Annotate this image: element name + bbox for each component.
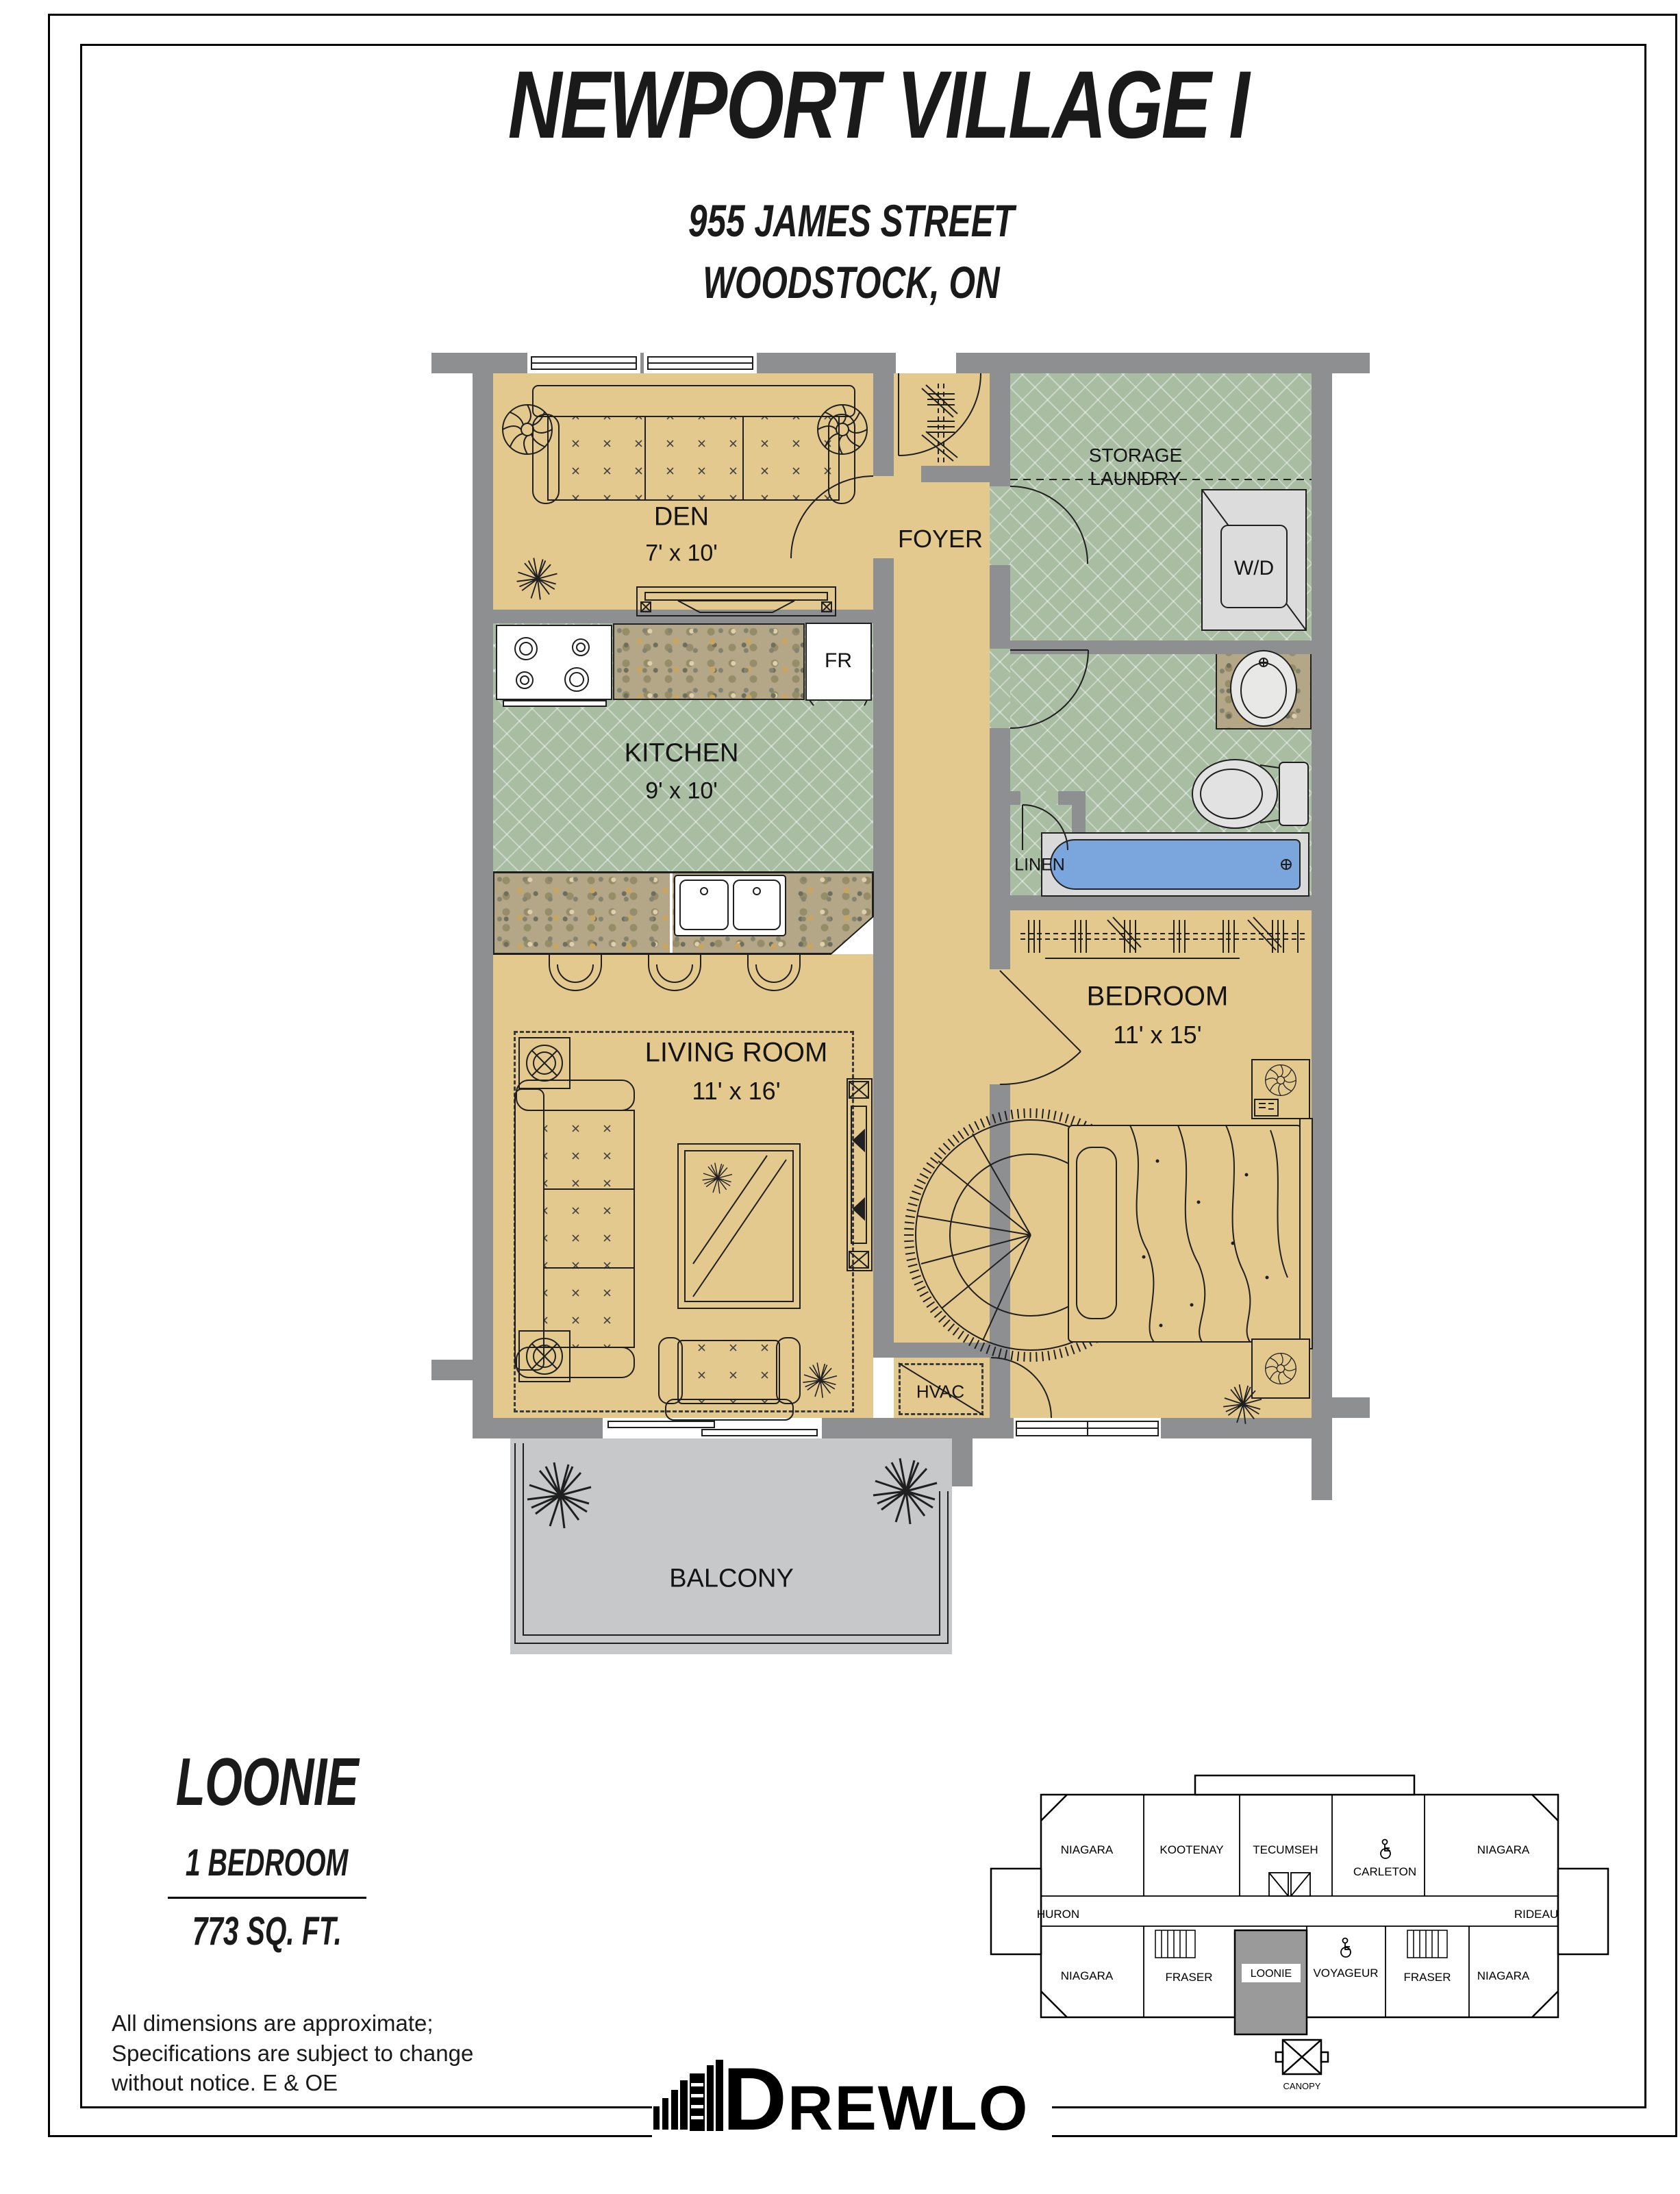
den-sofa (533, 386, 855, 503)
keyplan-unit-voyageur: VOYAGEUR (1313, 1967, 1378, 1980)
storage-label-line1: STORAGE (1089, 445, 1182, 466)
stove (497, 625, 612, 706)
linen-label: LINEN (1014, 856, 1065, 875)
keyplan-canopy-box (1276, 2040, 1328, 2074)
keyplan-rideau-wing (1558, 1869, 1608, 1954)
den-console (637, 587, 836, 616)
drewlo-logo-graphic: D REWLO (652, 2052, 1052, 2142)
armchair (659, 1338, 800, 1420)
logo-letters-rewlo: REWLO (788, 2073, 1029, 2142)
den-dims: 7' x 10' (645, 540, 718, 567)
storage-label-line2: LAUNDRY (1090, 468, 1181, 490)
keyplan-unit-niagara-tl: NIAGARA (1061, 1843, 1114, 1856)
keyplan-unit-rideau: RIDEAU (1514, 1908, 1558, 1921)
bar-stools (549, 954, 800, 990)
washer-dryer-label: W/D (1234, 557, 1274, 580)
disclaimer-line3: without notice. E & OE (112, 2068, 495, 2098)
keyplan-unit-fraser-r: FRASER (1404, 1971, 1451, 1984)
keyplan-unit-kootenay: KOOTENAY (1159, 1843, 1223, 1856)
keyplan-huron-wing (991, 1869, 1041, 1954)
keyplan-unit-loonie: LOONIE (1251, 1968, 1292, 1980)
unit-name: LOONIE (176, 1743, 358, 1821)
keyplan-unit-huron: HURON (1037, 1908, 1079, 1921)
address-line2: WOODSTOCK, ON (703, 256, 1000, 308)
hvac-label: HVAC (916, 1382, 964, 1403)
disclaimer-line2: Specifications are subject to change (112, 2039, 495, 2069)
drewlo-logo: D REWLO (652, 2052, 1052, 2142)
bedroom-window (1016, 1421, 1158, 1436)
keyplan-unit-tecumseh: TECUMSEH (1253, 1843, 1318, 1856)
wall-stub-right-bottom (1332, 1397, 1370, 1418)
nightstand-top (1252, 1060, 1309, 1119)
toilet (1192, 760, 1308, 828)
disclaimer: All dimensions are approximate; Specific… (112, 2008, 495, 2098)
keyplan-unit-carleton: CARLETON (1353, 1865, 1416, 1878)
keyplan-canopy-label: CANOPY (1283, 2081, 1321, 2091)
bedroom-label: BEDROOM (1087, 982, 1229, 1012)
wall-stub-left (431, 1360, 473, 1380)
storage-door (1010, 486, 1088, 564)
living-room-dims: 11' x 16' (692, 1077, 780, 1106)
foyer-label: FOYER (898, 525, 983, 553)
bed (1068, 1119, 1312, 1349)
keyplan-unit-niagara-br: NIAGARA (1477, 1969, 1530, 1982)
floor-plan: DEN 7' x 10' FOYER STORAGE LAUNDRY W/D F… (473, 353, 1336, 1661)
bedroom-closet-hangers (1020, 917, 1307, 958)
keyplan-unit-niagara-bl: NIAGARA (1061, 1969, 1114, 1982)
den-label: DEN (654, 503, 709, 532)
keyplan-unit-fraser-l: FRASER (1166, 1971, 1213, 1984)
unit-rule (168, 1897, 366, 1899)
disclaimer-line1: All dimensions are approximate; (112, 2008, 495, 2039)
window-glass-lines (531, 357, 753, 369)
nightstand-bottom (1252, 1339, 1309, 1398)
balcony-slider (608, 1421, 817, 1436)
logo-building-icon (653, 2060, 723, 2131)
tv (847, 1079, 872, 1271)
bathroom-sink (1231, 651, 1296, 726)
kitchen-dims: 9' x 10' (645, 778, 718, 805)
page-title: NEWPORT VILLAGE I (508, 49, 1249, 160)
unit-area: 773 SQ. FT. (192, 1908, 342, 1954)
address-line1: 955 JAMES STREET (688, 195, 1014, 247)
living-sofa (515, 1080, 634, 1378)
fridge-label: FR (825, 649, 852, 673)
unit-type: 1 BEDROOM (186, 1840, 348, 1884)
unit-info: LOONIE 1 BEDROOM 773 SQ. FT. (89, 1743, 445, 1954)
hvac-door (991, 1358, 1051, 1418)
kitchen-label: KITCHEN (625, 739, 739, 769)
living-room-label: LIVING ROOM (645, 1038, 828, 1069)
balcony-label: BALCONY (669, 1565, 794, 1594)
building-key-plan: NIAGARA KOOTENAY TECUMSEH CARLETON NIAGA… (976, 1747, 1627, 2096)
foyer-closet-hangers (922, 384, 957, 464)
bedroom-door (1000, 971, 1081, 1084)
keyplan-unit-niagara-tr: NIAGARA (1477, 1843, 1530, 1856)
bathroom-door (1010, 650, 1088, 728)
linen-door (1023, 805, 1068, 850)
coffee-table (678, 1144, 800, 1308)
kitchen-sink (675, 875, 786, 936)
bedroom-dims: 11' x 15' (1113, 1021, 1201, 1049)
logo-letter-d: D (723, 2052, 787, 2142)
